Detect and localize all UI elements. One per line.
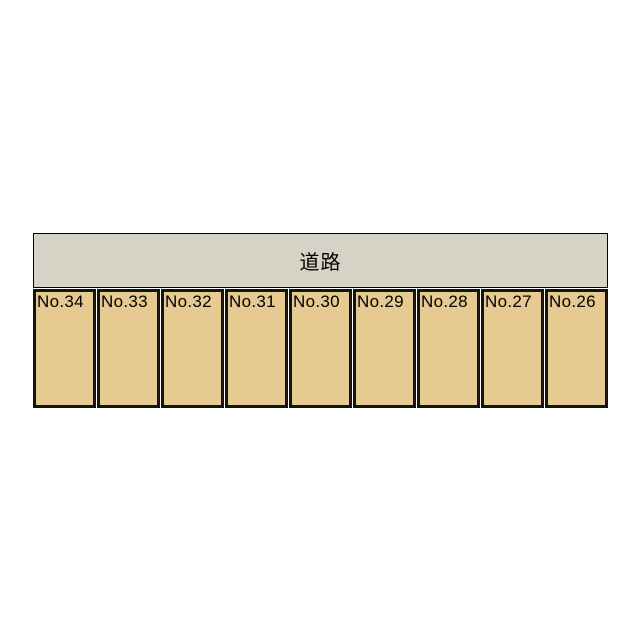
parking-space-label: No.28 (420, 292, 477, 312)
parking-space-no33: No.33 (97, 289, 160, 408)
parking-space-label: No.27 (484, 292, 541, 312)
parking-space-label: No.26 (548, 292, 605, 312)
parking-space-no34: No.34 (33, 289, 96, 408)
parking-space-label: No.32 (164, 292, 221, 312)
parking-space-no26: No.26 (545, 289, 608, 408)
parking-space-label: No.29 (356, 292, 413, 312)
parking-space-label: No.34 (36, 292, 93, 312)
road-label: 道路 (300, 246, 342, 275)
parking-spaces-row: No.34 No.33 No.32 No.31 No.30 No.29 No.2… (33, 289, 608, 408)
parking-space-label: No.31 (228, 292, 285, 312)
parking-space-no32: No.32 (161, 289, 224, 408)
parking-space-no30: No.30 (289, 289, 352, 408)
parking-space-no28: No.28 (417, 289, 480, 408)
parking-space-label: No.33 (100, 292, 157, 312)
road-band: 道路 (33, 233, 608, 288)
parking-space-label: No.30 (292, 292, 349, 312)
parking-space-no31: No.31 (225, 289, 288, 408)
parking-space-no29: No.29 (353, 289, 416, 408)
parking-lot-diagram: 道路 No.34 No.33 No.32 No.31 No.30 No.29 N… (33, 233, 608, 408)
parking-space-no27: No.27 (481, 289, 544, 408)
